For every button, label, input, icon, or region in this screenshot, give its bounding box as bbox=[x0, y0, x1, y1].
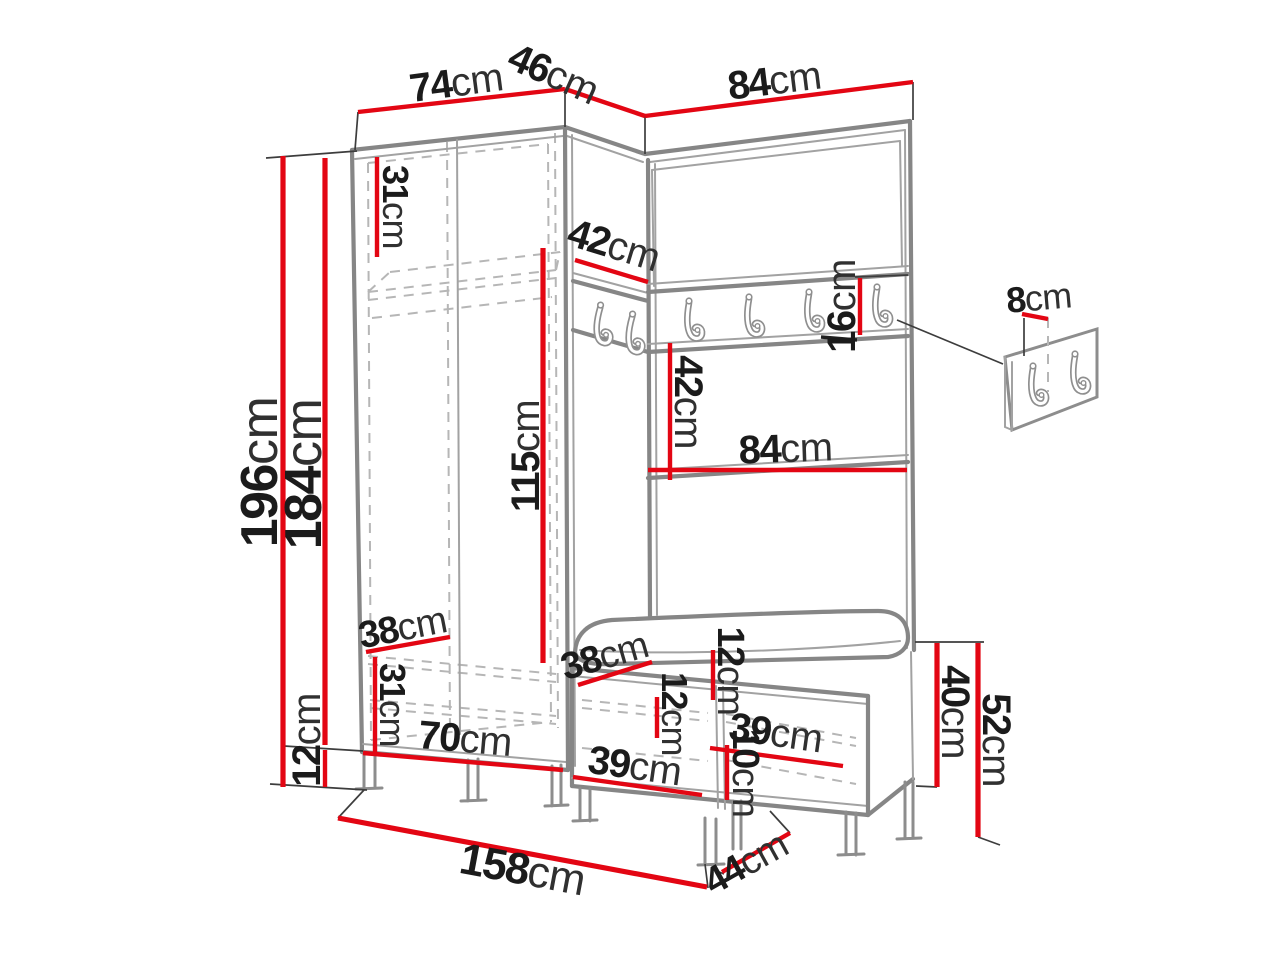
dim-label-bottom-compartment-depth: 38cm bbox=[355, 599, 450, 657]
coat-hook-icon bbox=[746, 294, 762, 334]
dim-label-hanging-space-height: 115cm bbox=[504, 400, 548, 512]
wall-hook-panel bbox=[897, 318, 1097, 430]
wardrobe-dimensions-diagram: 74cm 46cm 84cm 196cm 184cm 12cm 31cm 42c… bbox=[0, 0, 1280, 960]
dim-label-total-width: 158cm bbox=[456, 834, 589, 905]
dim-label-bench-total-height: 52cm bbox=[974, 693, 1018, 787]
dim-label-bench-body-height: 40cm bbox=[933, 665, 977, 759]
dim-label-leg-height: 12cm bbox=[285, 693, 329, 787]
dim-label-top-left-width: 74cm bbox=[407, 55, 506, 111]
dim-label-hook-rail-height: 16cm bbox=[820, 259, 864, 353]
dim-label-top-shelf-height: 31cm bbox=[375, 165, 416, 249]
coat-hook-icon bbox=[874, 284, 890, 324]
dim-label-corner-depth: 46cm bbox=[501, 35, 605, 113]
dim-label-bottom-shelf-height: 31cm bbox=[372, 663, 413, 747]
dim-label-bench-plinth-height: 10cm bbox=[724, 729, 766, 818]
dim-label-wall-hook-offset: 8cm bbox=[1004, 274, 1073, 321]
dim-label-cabinet-inner-width: 70cm bbox=[416, 713, 513, 765]
dim-label-bench-inner-height: 12cm bbox=[654, 672, 695, 756]
diagram-page: 74cm 46cm 84cm 196cm 184cm 12cm 31cm 42c… bbox=[0, 0, 1280, 960]
dim-label-shelf-width: 84cm bbox=[738, 425, 833, 472]
dim-label-shelf-gap-height: 42cm bbox=[666, 355, 710, 449]
coat-hook-icon bbox=[686, 298, 702, 338]
dim-label-cushion-thickness: 12cm bbox=[709, 627, 751, 716]
dim-label-cabinet-height: 184cm bbox=[275, 399, 333, 550]
dim-label-top-right-width: 84cm bbox=[725, 54, 823, 109]
dim-label-bench-depth: 44cm bbox=[697, 824, 795, 904]
